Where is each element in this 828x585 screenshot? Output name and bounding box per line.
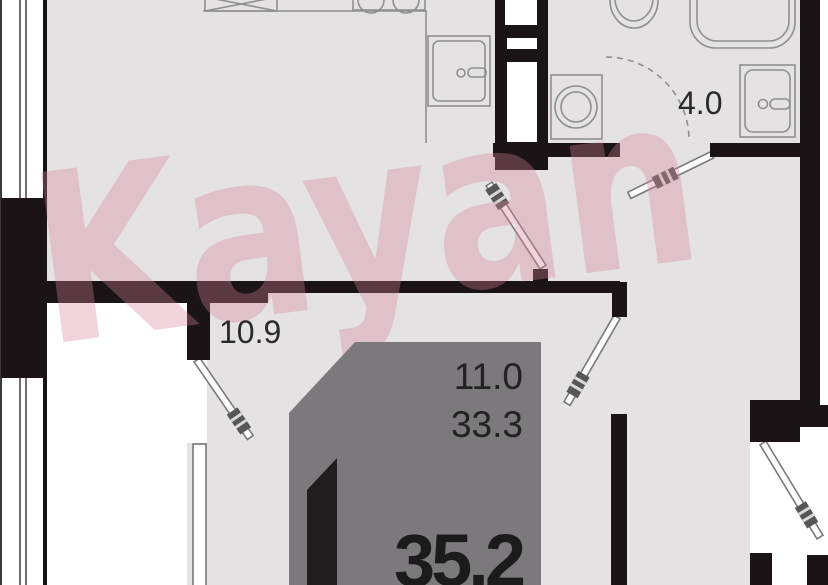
label-total-area: 35.2 bbox=[394, 524, 522, 585]
label-room-area: 11.0 bbox=[400, 358, 523, 395]
label-bathroom-area: 4.0 bbox=[678, 87, 722, 119]
floor-plan-canvas: Kayan 4.0 10.9 11.0 33.3 35.2 bbox=[0, 0, 828, 585]
label-hallway-area: 10.9 bbox=[219, 316, 281, 348]
label-living-total-area: 33.3 bbox=[400, 406, 523, 443]
